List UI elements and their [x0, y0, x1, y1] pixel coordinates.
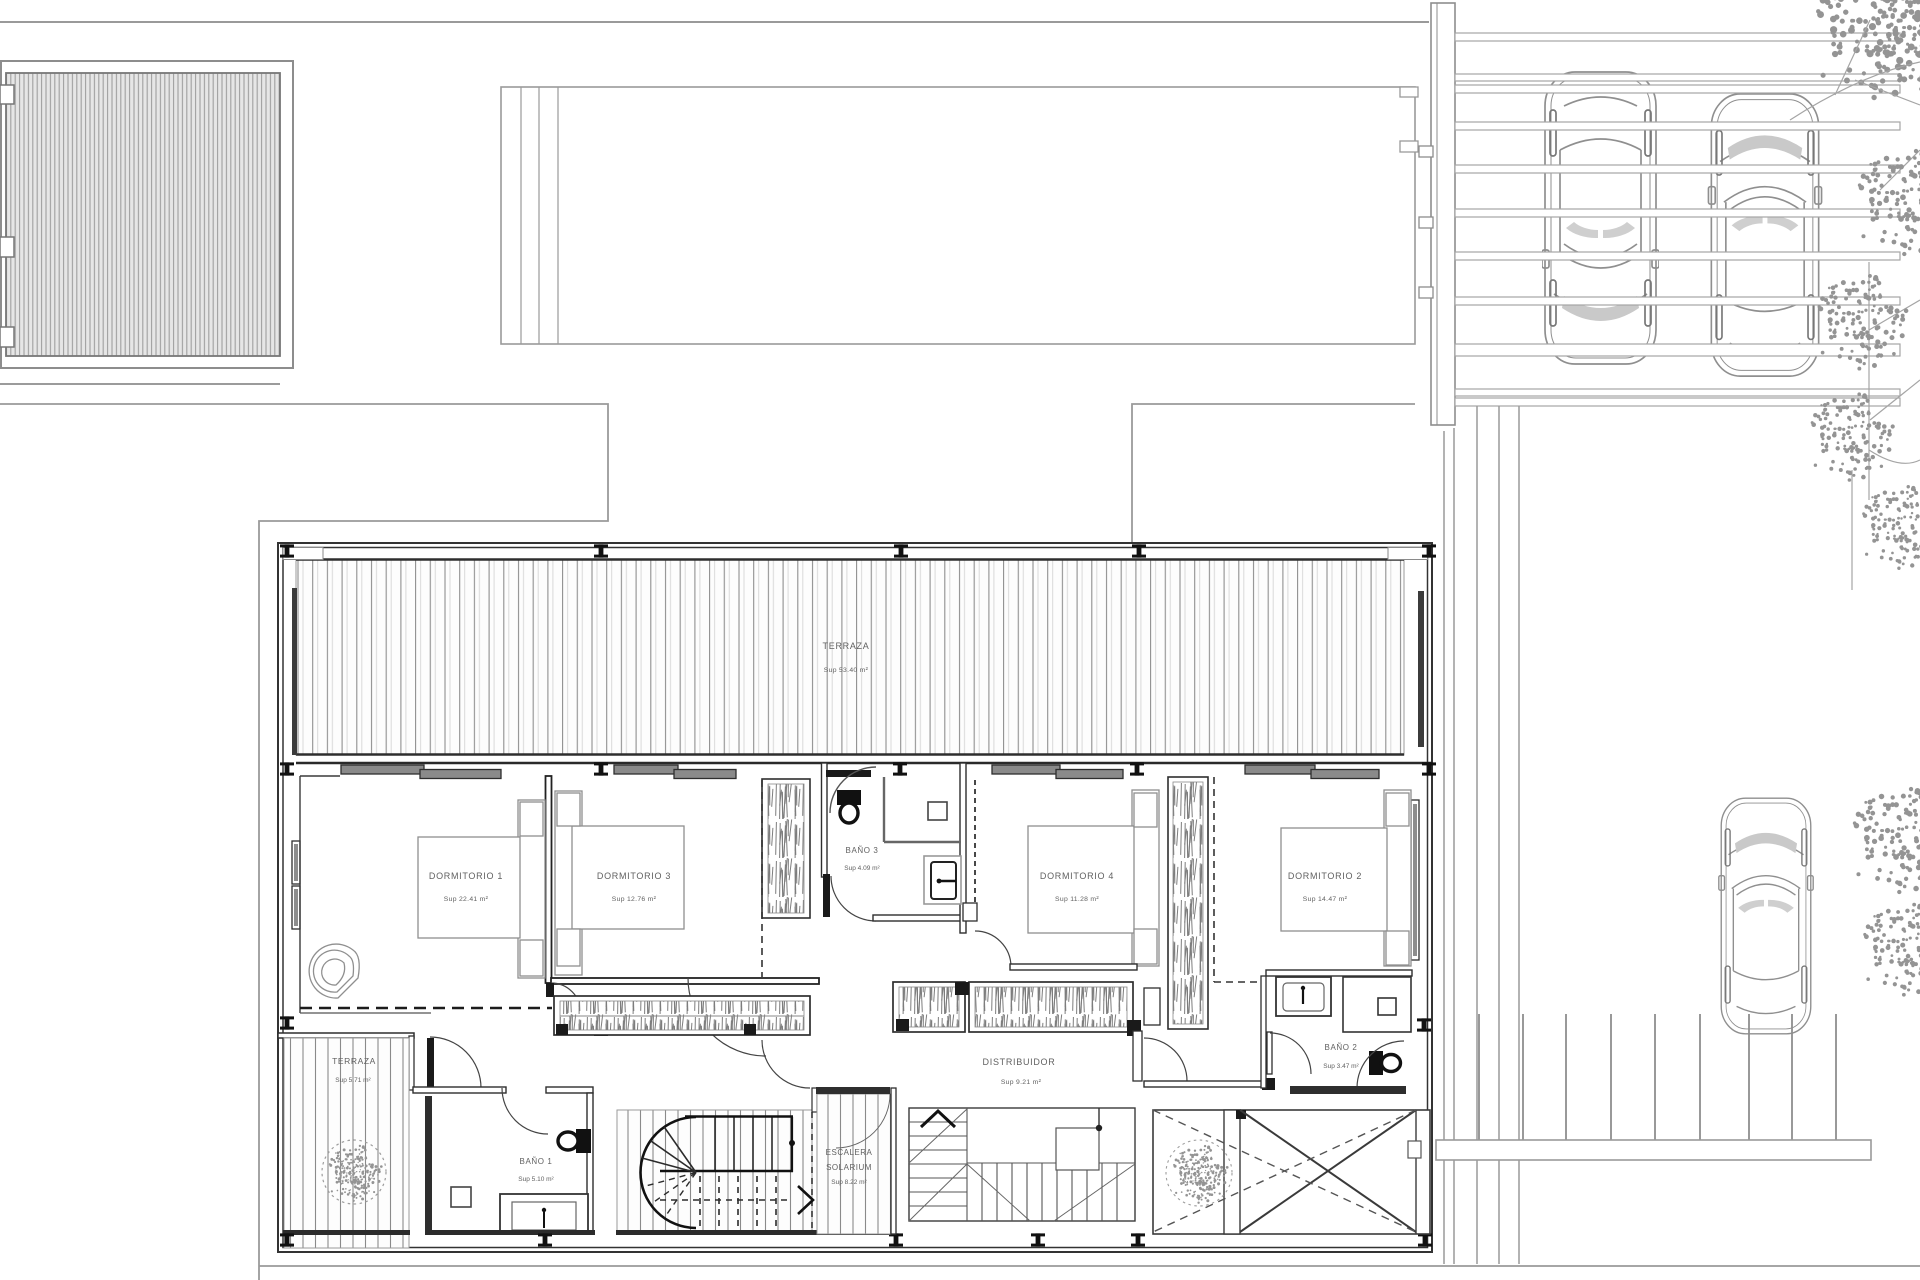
svg-text:Sup 4.09 m²: Sup 4.09 m²: [844, 865, 880, 872]
svg-text:DORMITORIO 4: DORMITORIO 4: [1040, 871, 1114, 881]
svg-text:Sup 14.47 m²: Sup 14.47 m²: [1303, 896, 1348, 903]
svg-text:DORMITORIO 3: DORMITORIO 3: [597, 871, 671, 881]
svg-text:DORMITORIO 1: DORMITORIO 1: [429, 871, 503, 881]
svg-text:Sup 11.28 m²: Sup 11.28 m²: [1055, 896, 1099, 903]
svg-text:DORMITORIO 2: DORMITORIO 2: [1288, 871, 1362, 881]
svg-text:ESCALERA: ESCALERA: [826, 1148, 873, 1157]
svg-text:Sup 8.22 m²: Sup 8.22 m²: [831, 1179, 867, 1186]
svg-text:DISTRIBUIDOR: DISTRIBUIDOR: [983, 1057, 1056, 1067]
svg-text:BAÑO 1: BAÑO 1: [520, 1157, 553, 1166]
svg-text:BAÑO 3: BAÑO 3: [846, 846, 879, 855]
svg-text:Sup 9.21 m²: Sup 9.21 m²: [1001, 1079, 1042, 1086]
svg-text:TERRAZA: TERRAZA: [823, 641, 870, 651]
svg-text:Sup 22.41 m²: Sup 22.41 m²: [444, 896, 489, 903]
svg-text:TERRAZA: TERRAZA: [332, 1056, 376, 1066]
svg-text:Sup 3.47 m²: Sup 3.47 m²: [1323, 1063, 1359, 1070]
svg-text:BAÑO 2: BAÑO 2: [1325, 1043, 1358, 1052]
svg-text:SOLARIUM: SOLARIUM: [826, 1163, 872, 1172]
svg-text:Sup 53.40 m²: Sup 53.40 m²: [824, 667, 869, 674]
svg-text:Sup 5.71 m²: Sup 5.71 m²: [335, 1077, 371, 1084]
svg-text:Sup 12.76 m²: Sup 12.76 m²: [612, 896, 657, 903]
svg-text:Sup 5.10 m²: Sup 5.10 m²: [518, 1176, 554, 1183]
